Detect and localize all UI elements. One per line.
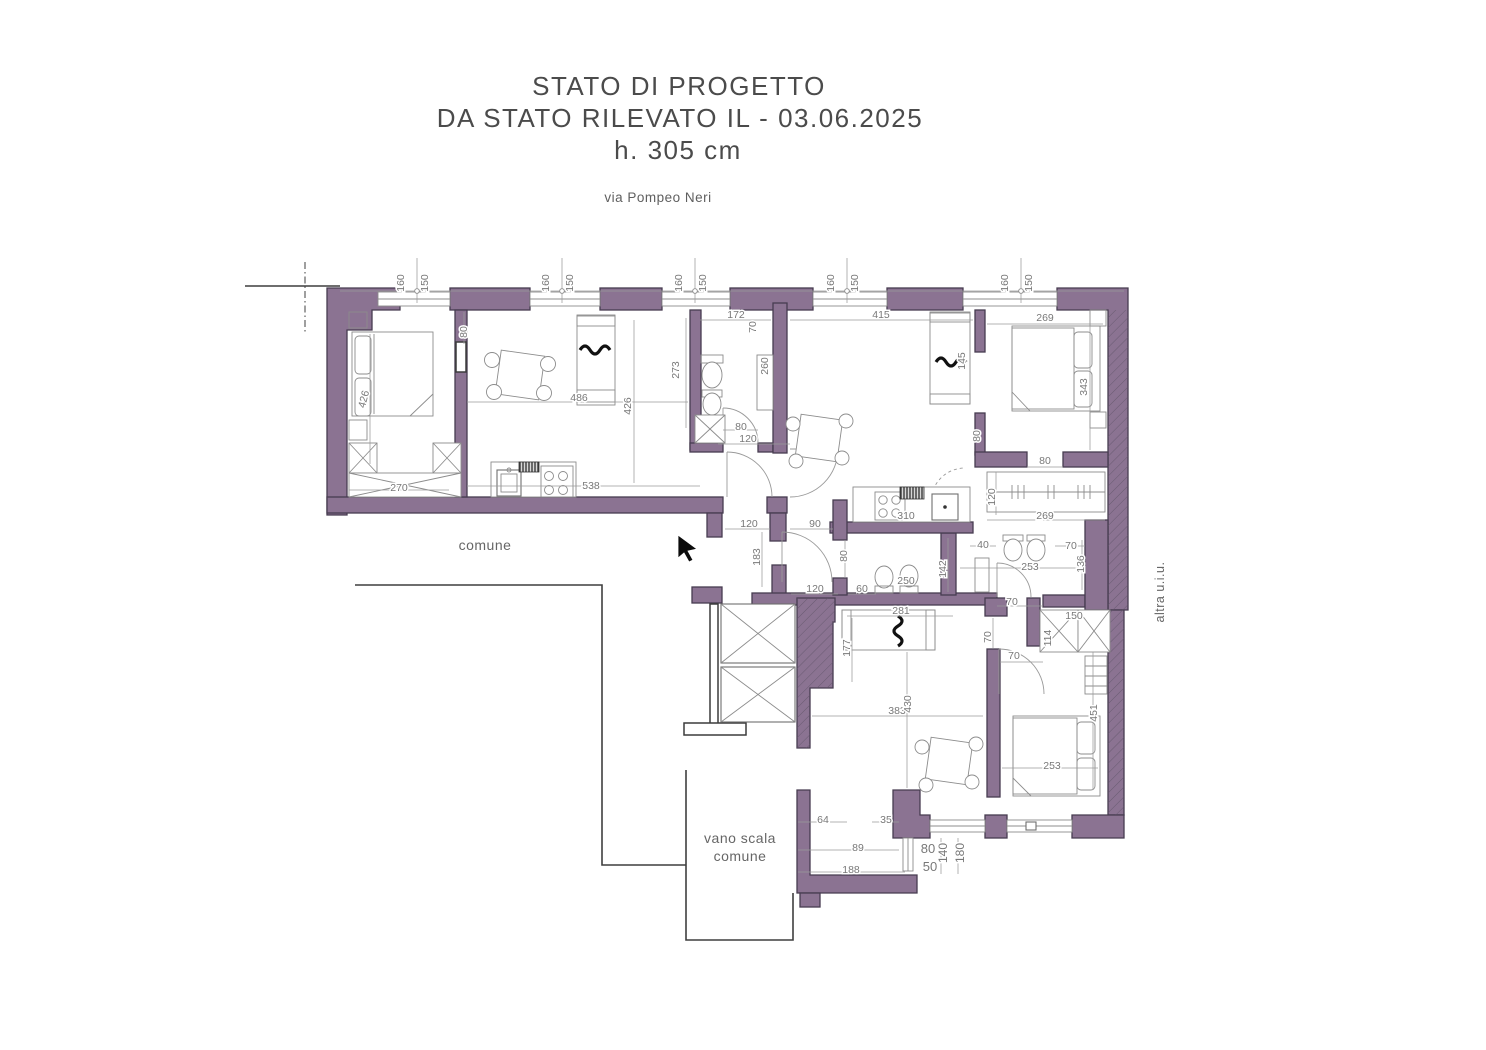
dim-bath1-d: 70 (747, 321, 759, 333)
wall-apt3-pier (985, 815, 1007, 838)
dim-win140: 140 (936, 843, 950, 863)
dim-w5-160: 160 (999, 274, 1011, 292)
dim-liv3-h: 430 (902, 695, 914, 713)
dim-s64: 64 (817, 814, 829, 826)
dim-hall-door1: 120 (740, 518, 758, 530)
dim-sofa2: 145 (956, 352, 968, 370)
wall-hall-right-a (833, 500, 847, 540)
dim-bath2-h: 136 (1075, 555, 1087, 573)
dim-bed3-h: 451 (1088, 704, 1100, 722)
dim-bath1-door: 80 (735, 421, 747, 433)
dim-hall-door2: 80 (838, 550, 850, 562)
wall-hall-right-b (833, 578, 847, 595)
wall-scala-step (800, 893, 820, 907)
dim-kitchen1: 538 (582, 480, 600, 492)
window-4 (813, 292, 887, 306)
dim-bath2-a: 40 (977, 539, 989, 551)
dim-bed2-door: 80 (971, 430, 983, 442)
title-line-1: STATO DI PROGETTO (532, 71, 826, 101)
wall-hall-top (767, 497, 787, 513)
dim-ward3-h: 114 (1042, 629, 1054, 646)
dim-s188: 188 (842, 864, 860, 876)
stairwell-label-line1: vano scala (704, 830, 776, 846)
dim-w1-160: 160 (395, 274, 407, 292)
window-apt3-left (930, 820, 985, 832)
wardrobe-apt3 (1040, 610, 1110, 694)
wall-apt3-vert (1027, 598, 1040, 646)
dim-bath2-w: 253 (1021, 561, 1039, 573)
dim-bath1-h: 273 (670, 361, 682, 379)
title-line-2: DA STATO RILEVATO IL - 03.06.2025 (437, 103, 923, 133)
door-hall (782, 532, 832, 582)
bed-apt3 (1013, 716, 1100, 796)
dining-table-apt1 (485, 350, 556, 400)
dim-ward2-d: 120 (986, 488, 998, 506)
dim-wc1-len: 250 (897, 575, 915, 587)
wall-hall-left-b (772, 565, 786, 595)
dining-table-apt2 (786, 414, 853, 468)
dim-s35: 35 (880, 814, 892, 826)
other-unit-label: altra u.i.u. (1153, 562, 1167, 623)
wall-bottom-right-corner (1072, 815, 1124, 838)
elevator-and-thin-walls (355, 585, 795, 940)
wall-apt3-conn (985, 598, 1007, 616)
wall-hall-bottom-b (752, 593, 997, 605)
dim-kitchen2: 310 (897, 510, 915, 522)
dim-bath1-w: 172 (727, 309, 745, 321)
dim-w4-150: 150 (849, 274, 861, 292)
dim-ward2-open: 80 (1039, 455, 1051, 467)
window-3 (662, 292, 730, 306)
hatch-right-wall-upper (1108, 310, 1128, 610)
dim-w4-160: 160 (825, 274, 837, 292)
wall-apt3-partition (987, 649, 1000, 797)
stairwell-label-line2: comune (714, 848, 767, 864)
dim-win-v80: 80 (921, 841, 935, 856)
dim-s89: 89 (852, 842, 864, 854)
dim-w5-150: 150 (1023, 274, 1035, 292)
dim-liv2: 415 (872, 309, 890, 321)
window-scala (903, 838, 913, 871)
dim-win180: 180 (953, 843, 967, 863)
dim-w3-160: 160 (673, 274, 685, 292)
dim-w3-150: 150 (697, 274, 709, 292)
wall-kitchen2-bottom (830, 522, 973, 533)
wall-stub (707, 513, 722, 537)
dim-bath1-ext: 120 (739, 433, 757, 445)
dim-bath2-door: 70 (1006, 596, 1018, 608)
wall-bath1-right (773, 303, 787, 453)
kitchen-apt1 (491, 462, 576, 497)
door-bed3 (999, 649, 1044, 694)
apt1-partition-door-slit (456, 342, 466, 372)
wardrobe-apt2 (987, 472, 1105, 512)
dim-bed3-w: 253 (1043, 760, 1061, 772)
dim-bed2-w: 269 (1036, 312, 1054, 324)
window-1 (378, 292, 450, 306)
reference-lines (245, 262, 340, 332)
dim-w1-150: 150 (419, 274, 431, 292)
dim-bath1-cab: 260 (759, 357, 771, 375)
dim-ward2-w: 269 (1036, 510, 1054, 522)
title-line-3: h. 305 cm (614, 135, 742, 165)
dim-hall-w: 90 (809, 518, 821, 530)
mouse-cursor (678, 535, 697, 562)
wall-hall-left-a (770, 513, 786, 541)
elevator-shaft (721, 604, 795, 722)
dim-w2-160: 160 (540, 274, 552, 292)
stair-outline-a (355, 585, 686, 865)
corridor-label: comune (459, 537, 512, 553)
dim-bath2-d: 142 (937, 560, 949, 578)
dim-hall-h: 183 (751, 548, 763, 566)
window-2 (530, 292, 600, 306)
dining-table-apt3 (915, 737, 983, 792)
wall-bath2-right (1085, 520, 1108, 610)
dim-sofa3-w: 281 (892, 605, 910, 617)
window-apt3-right (1007, 820, 1072, 832)
hatch-stair-chunk (797, 598, 835, 748)
dim-bed3-gap: 70 (1008, 650, 1020, 662)
dim-bed2-h: 343 (1078, 378, 1090, 396)
dim-liv1: 426 (622, 397, 634, 415)
elevator-bottom-wall (684, 723, 746, 735)
wall-bath2-bottom (1043, 595, 1085, 607)
floor-plan-page: STATO DI PROGETTO DA STATO RILEVATO IL -… (0, 0, 1486, 1050)
dim-hall-door3: 120 (806, 583, 824, 595)
floor-plan-canvas: STATO DI PROGETTO DA STATO RILEVATO IL -… (0, 0, 1486, 1050)
door-apt1 (727, 452, 772, 497)
dim-sofa1: 486 (570, 392, 588, 404)
elevator-left-wall (710, 604, 718, 724)
dim-ward3-w: 150 (1065, 610, 1083, 622)
dim-wc1-w: 60 (856, 583, 868, 595)
wall-niche-b (1063, 452, 1108, 467)
bed-apt1 (349, 312, 433, 440)
dim-w2-150: 150 (564, 274, 576, 292)
wall-apt3-bl-block (893, 790, 930, 838)
address-label: via Pompeo Neri (604, 190, 711, 205)
title-block: STATO DI PROGETTO DA STATO RILEVATO IL -… (437, 71, 923, 205)
wall-niche-a (975, 452, 1027, 467)
dim-bath2-b: 70 (1065, 540, 1077, 552)
dim-sofa3-h: 177 (841, 639, 853, 657)
dim-ward1: 270 (390, 482, 408, 494)
wall-apt1-bottom (327, 497, 723, 513)
dim-bed3-door: 70 (982, 631, 994, 643)
window-5 (963, 292, 1057, 306)
wall-bed2-partition-a (975, 310, 985, 352)
wall-hall-bottom-a (692, 587, 722, 603)
bed-apt2 (1012, 310, 1106, 428)
dim-part-door: 80 (458, 326, 470, 338)
